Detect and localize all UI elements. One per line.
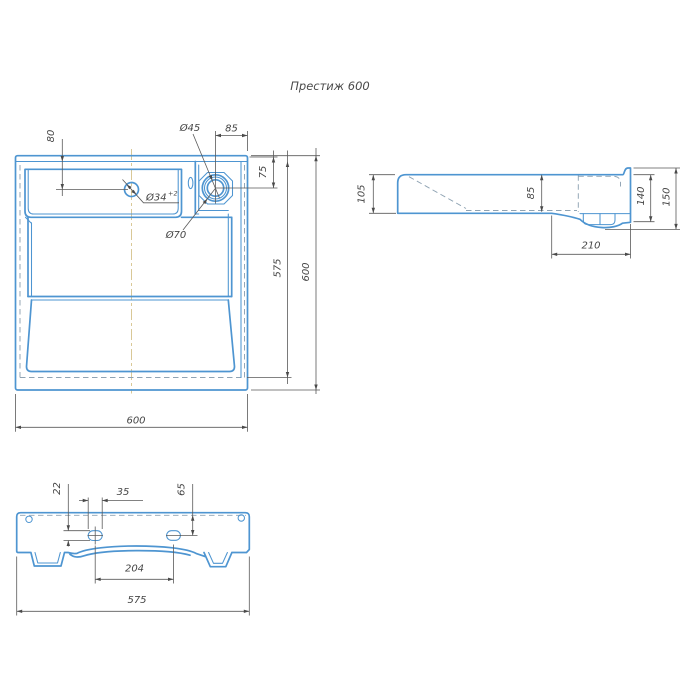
plan-dim-34-tolerance: +2 xyxy=(168,190,178,198)
plan-dim-80: 80 xyxy=(46,130,57,143)
plan-view: 80 Ø45 85 Ø34 +2 75 Ø70 575 600 600 xyxy=(16,122,321,432)
front-dim-204: 204 xyxy=(125,564,144,575)
side-drain-boss xyxy=(583,214,615,225)
front-dim-65: 65 xyxy=(177,483,188,496)
front-slot-centerlines xyxy=(88,527,182,545)
drawing-title: Престиж 600 xyxy=(290,79,369,93)
plan-basin-walls-outer xyxy=(28,217,232,296)
plan-dim-75: 75 xyxy=(258,166,269,179)
front-dim-575: 575 xyxy=(127,595,146,606)
plan-dim-600-bottom: 600 xyxy=(126,416,145,427)
plan-basin-slope xyxy=(27,300,235,372)
front-dim-22: 22 xyxy=(52,482,63,495)
side-hidden-lines xyxy=(409,175,621,212)
drawing-canvas: Престиж 600 xyxy=(0,0,700,700)
technical-drawing-sheet: Престиж 600 xyxy=(0,0,700,700)
plan-dim-lines xyxy=(16,131,321,432)
front-dimensions: 22 35 65 204 575 xyxy=(17,482,250,615)
side-body-outline xyxy=(398,168,631,228)
side-dim-140: 140 xyxy=(636,186,647,205)
plan-dim-arrows xyxy=(16,134,318,429)
side-dim-85: 85 xyxy=(526,187,537,200)
side-dim-210: 210 xyxy=(581,241,600,252)
front-view: 22 35 65 204 575 xyxy=(17,482,250,615)
front-dim-35: 35 xyxy=(117,487,130,498)
side-dim-150: 150 xyxy=(662,187,673,206)
plan-basin-walls-inner xyxy=(32,214,229,297)
side-dim-105: 105 xyxy=(357,184,368,203)
plan-dim-600-right: 600 xyxy=(301,262,312,281)
side-view: 105 85 140 150 210 xyxy=(357,168,681,259)
front-body-outline xyxy=(17,513,250,567)
plan-dim-34: Ø34 xyxy=(145,192,167,204)
plan-dim-85: 85 xyxy=(225,124,238,135)
plan-overflow-slot xyxy=(188,177,193,188)
plan-dim-70: Ø70 xyxy=(165,229,187,241)
front-screw-hole-left xyxy=(26,516,32,522)
plan-dim-575: 575 xyxy=(273,258,284,277)
plan-dim-45: Ø45 xyxy=(179,122,201,134)
